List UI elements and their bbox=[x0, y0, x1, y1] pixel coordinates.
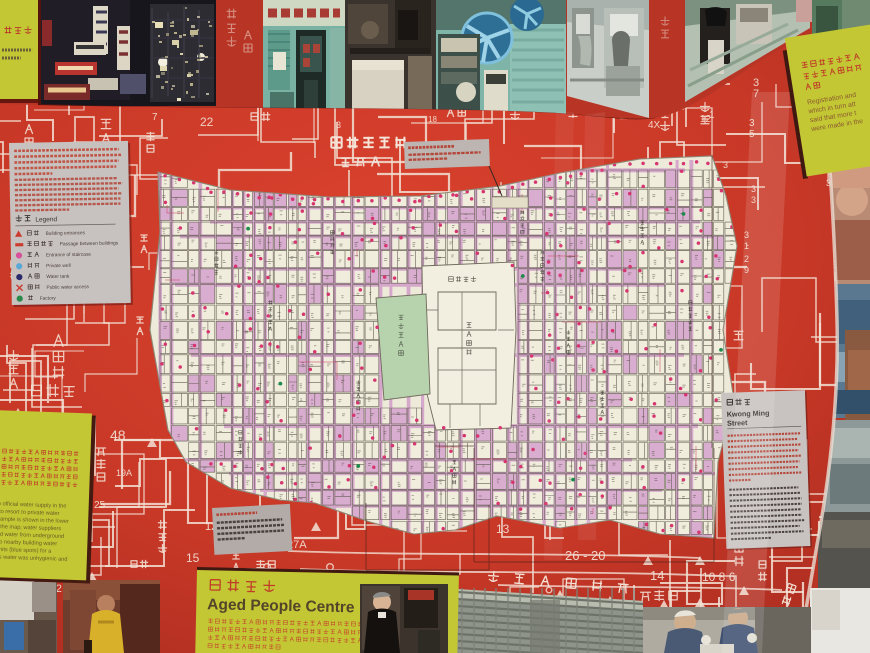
svg-text:48: 48 bbox=[110, 427, 126, 443]
svg-text:Aged People Centre: Aged People Centre bbox=[207, 596, 355, 616]
svg-text:Legend: Legend bbox=[35, 216, 57, 223]
svg-text:3: 3 bbox=[723, 160, 728, 170]
svg-text:Entrance of staircase: Entrance of staircase bbox=[46, 252, 91, 259]
svg-text:26 - 20: 26 - 20 bbox=[565, 548, 605, 563]
svg-text:Private well: Private well bbox=[46, 263, 71, 269]
svg-text:Public water access: Public water access bbox=[46, 284, 89, 291]
svg-text:4X: 4X bbox=[648, 120, 661, 131]
svg-text:7: 7 bbox=[152, 112, 158, 123]
svg-text:19A: 19A bbox=[116, 468, 132, 478]
svg-text:25: 25 bbox=[94, 500, 106, 511]
svg-text:15: 15 bbox=[186, 551, 200, 565]
svg-text:3: 3 bbox=[336, 120, 341, 130]
svg-text:Water tank: Water tank bbox=[46, 274, 70, 280]
svg-text:22: 22 bbox=[200, 115, 214, 129]
svg-text:13: 13 bbox=[496, 522, 510, 536]
svg-text:18: 18 bbox=[428, 115, 437, 124]
svg-text:14: 14 bbox=[650, 568, 664, 583]
svg-text:Factory: Factory bbox=[40, 295, 57, 301]
svg-text:Passage between buildings: Passage between buildings bbox=[60, 240, 119, 247]
svg-text:Building entrances: Building entrances bbox=[46, 230, 86, 237]
